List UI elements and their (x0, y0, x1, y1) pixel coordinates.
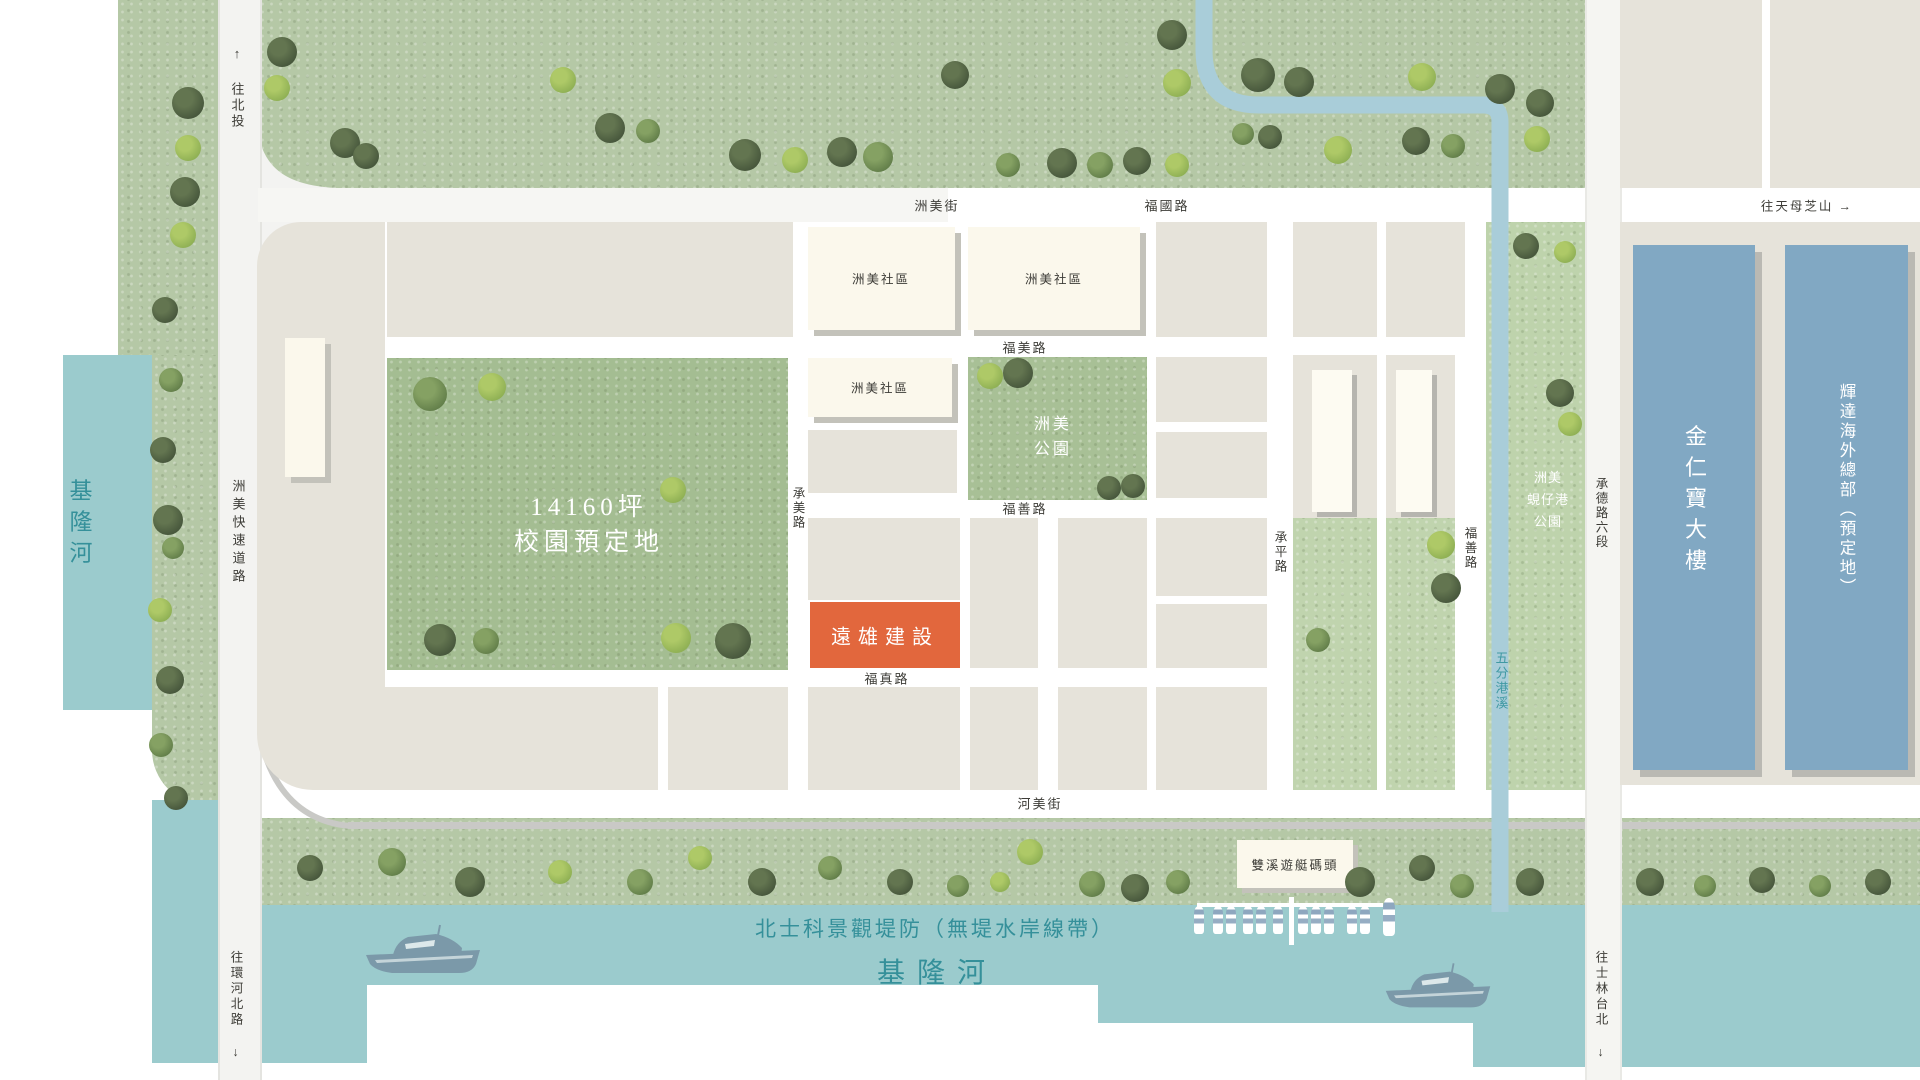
yacht-icon (1383, 960, 1493, 1018)
hemei-street-label: 河美街 (1017, 794, 1062, 813)
fuguo-road-label: 福國路 (1144, 196, 1189, 215)
zhoumei-park-label: 洲美 公園 (1034, 412, 1072, 462)
community-label: 洲美社區 (852, 269, 910, 288)
fushan-road-label: 福善路 (1002, 499, 1047, 518)
keelung-river-bottom (1473, 905, 1920, 1067)
marina-label: 雙溪遊艇碼頭 (1251, 855, 1338, 874)
city-block (808, 518, 960, 600)
kinpo-label: 金仁寶大樓 (1678, 425, 1710, 580)
farglory-label: 遠雄建設 (831, 621, 939, 650)
green-strip (1293, 518, 1377, 790)
direction-huanhe: 往環河北路 ↓ (227, 950, 246, 1062)
city-block (1156, 687, 1267, 790)
chengping-road-label: 承平路 (1271, 530, 1290, 574)
campus-label: 14160坪 校園預定地 (514, 490, 664, 560)
fuzhen-road-label: 福真路 (864, 669, 909, 688)
keelung-river-label: 基隆河 (61, 479, 95, 572)
city-block (1386, 222, 1465, 337)
left-green-strip-lower (152, 355, 218, 805)
community-label: 洲美社區 (851, 378, 909, 397)
city-block (668, 687, 788, 790)
direction-north: ↑ 往北投 (228, 46, 247, 130)
xianzai-label-line3: 公園 (1534, 514, 1562, 529)
zhoumei-street-road (258, 188, 948, 222)
city-block (808, 430, 957, 493)
city-block (808, 687, 960, 790)
city-block (387, 222, 793, 337)
city-block (1620, 0, 1762, 188)
levee-label: 北士科景觀堤防（無堤水岸線帶） (755, 913, 1115, 943)
city-block (1058, 518, 1147, 668)
community-label: 洲美社區 (1025, 269, 1083, 288)
yacht-icon (363, 922, 483, 984)
fushan-road-v-label: 福善路 (1461, 526, 1480, 570)
city-block (970, 518, 1038, 668)
site-map: 基隆河 ↑ 往北投 洲美快速道路 往環河北路 ↓ 洲美街 福國路 往天母芝山 →… (0, 0, 1920, 1080)
keelung-river-main-label: 基隆河 (877, 951, 997, 991)
campus-label-line2: 校園預定地 (514, 529, 664, 556)
pier-post (1289, 897, 1294, 945)
city-block (1293, 222, 1377, 337)
tall-building (1396, 370, 1432, 512)
campus-label-line1: 14160坪 (530, 494, 648, 521)
city-block (1156, 518, 1267, 596)
xianzai-label-line1: 洲美 (1534, 470, 1562, 485)
green-strip (1386, 518, 1455, 790)
levee-green-band (258, 818, 1920, 905)
wufen-stream-label: 五分港溪 (1492, 651, 1511, 711)
city-block (257, 222, 385, 790)
fumei-road-label: 福美路 (1002, 338, 1047, 357)
city-block (1156, 604, 1267, 668)
chengde-road-label: 承德路六段 (1592, 477, 1611, 550)
top-green-band (258, 0, 1585, 188)
zhoumei-street-label: 洲美街 (914, 196, 959, 215)
keelung-river-bottom (152, 800, 222, 1063)
nvidia-label: 輝達海外總部（預定地） (1834, 383, 1858, 598)
levee-path-line (348, 822, 1920, 829)
city-block (385, 687, 658, 790)
xianzai-park-label: 洲美 蜆仔港 公園 (1527, 467, 1569, 533)
direction-tianmu: 往天母芝山 → (1761, 196, 1853, 215)
city-block (1156, 357, 1267, 422)
city-block (970, 687, 1038, 790)
direction-shilin: 往士林台北 ↓ (1592, 950, 1611, 1062)
city-block (1770, 0, 1920, 188)
expressway-label: 洲美快速道路 (229, 479, 248, 587)
left-green-strip (118, 0, 218, 360)
tall-building (1312, 370, 1352, 512)
xianzai-label-line2: 蜆仔港 (1527, 492, 1569, 507)
city-block (1058, 687, 1147, 790)
city-block (1156, 222, 1267, 337)
roadside-building (285, 338, 325, 477)
chengmei-road-label: 承美路 (789, 486, 808, 530)
city-block (1156, 432, 1267, 498)
park-label-line2: 公園 (1034, 441, 1072, 458)
park-label-line1: 洲美 (1034, 416, 1072, 433)
